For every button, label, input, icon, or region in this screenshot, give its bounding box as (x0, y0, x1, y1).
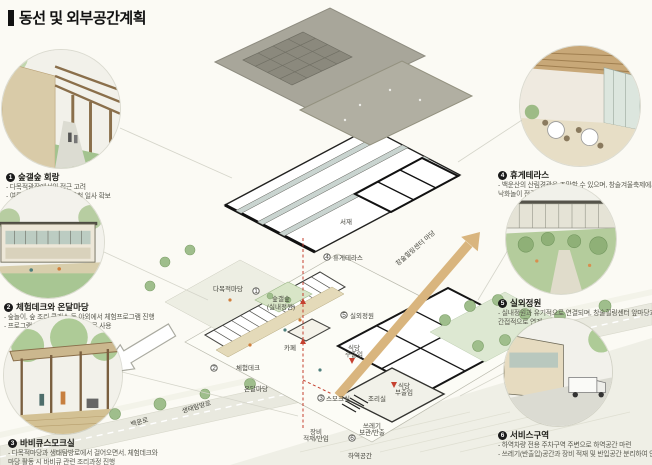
callout-outdoor-garden: 5실외정원 - 실내정원과 유기적으로 연결되며, 창술힐링센터 앞마당과 간접… (506, 184, 652, 327)
callout-heading: 1숲갤숲 회랑 (6, 171, 161, 183)
number-badge: 1 (6, 173, 15, 182)
callout-heading: 3바비큐스모크실 (8, 437, 188, 449)
callout-line: - 쓰레기(반출입)공간과 장비 적재 및 반입공간 분리하여 인접배치 (498, 450, 652, 459)
label-rest-main-2: 주출입 (345, 350, 363, 359)
label-trash-2: 보관/반출 (359, 428, 385, 437)
number-badge: 6 (498, 431, 507, 440)
photo-outdoor-garden (506, 184, 616, 294)
caption-service-zone: 6서비스구역 - 하역차량 전용 주차구역 주변으로 하역공간 마련 - 쓰레기… (498, 429, 652, 459)
photo-experience-deck (0, 186, 104, 298)
label-rest-sub-2: 부출입 (395, 388, 413, 397)
callout-heading: 5실외정원 (498, 297, 652, 309)
number-badge: 5 (498, 299, 507, 308)
callout-heading-text: 실외정원 (510, 297, 541, 309)
callout-heading: 6서비스구역 (498, 429, 652, 441)
roof-slabs (215, 8, 472, 145)
lifted-roof-level (225, 128, 460, 252)
callout-heading-text: 휴게테라스 (510, 169, 549, 181)
page-title: 동선 및 외부공간계획 (8, 7, 146, 28)
callout-line: - 하역차량 전용 주차구역 주변으로 하역공간 마련 (498, 441, 652, 450)
terrace-rendering (520, 46, 640, 166)
svg-text:1: 1 (254, 288, 258, 295)
presentation-board: 동선 및 외부공간계획 (0, 0, 652, 465)
svg-text:3: 3 (319, 395, 323, 402)
label-loading: 하역공간 (348, 451, 372, 460)
svg-text:2: 2 (212, 365, 216, 372)
callout-service-zone: 6서비스구역 - 하역차량 전용 주차구역 주변으로 하역공간 마련 - 쓰레기… (504, 318, 652, 459)
number-badge: 3 (8, 439, 17, 448)
callout-bbq-smoke-room: 3바비큐스모크실 - 다목적마당과 생태탐방로에서 걸어오면서, 체험데크와 마… (4, 316, 188, 465)
callout-heading: 2체험데크와 온달마당 (4, 301, 162, 313)
title-bar-icon (8, 10, 14, 26)
label-study: 서재 (340, 217, 352, 226)
callout-rest-terrace: 4휴게테라스 - 백운산의 산림경관을 조망할 수 있으며, 창술겨울축제에서 … (520, 46, 652, 199)
label-outdoor-garden: 실외정원 (350, 311, 374, 320)
callout-line: - 다목적마당과 생태탐방로에서 걸어오면서, 체험데크와 (8, 449, 188, 458)
svg-text:6: 6 (350, 435, 354, 442)
bbq-deck-rendering (4, 316, 122, 434)
callout-heading-text: 숲갤숲 회랑 (18, 171, 59, 183)
callout-line: 마당 활동 시 바비큐 관련 조리과정 진행 (8, 458, 188, 465)
label-indoor-garden: 숲갤숲 (272, 295, 290, 303)
label-indoor-garden-sub: (실내정원) (267, 302, 295, 311)
forest-corridor-rendering (2, 50, 120, 168)
label-smoke-room: 스모크실 (326, 394, 350, 403)
page-title-text: 동선 및 외부공간계획 (19, 7, 146, 28)
caption-bbq-smoke-room: 3바비큐스모크실 - 다목적마당과 생태탐방로에서 걸어오면서, 체험데크와 마… (8, 437, 188, 465)
axis-arrow-label: 창술힐링센터 마당 (393, 228, 436, 267)
photo-forest-corridor (2, 50, 120, 168)
label-ondal-yard: 온달마당 (244, 384, 268, 393)
callout-heading-text: 바비큐스모크실 (20, 437, 75, 449)
callout-forest-corridor: 1숲갤숲 회랑 - 다목적광장에서의 접근 고려 - 여름철 차양 역할 및 겨… (2, 50, 161, 201)
service-zone-rendering (504, 318, 612, 426)
callout-heading: 4휴게테라스 (498, 169, 652, 181)
label-terrace: 휴게테라스 (333, 253, 363, 262)
label-experience-deck: 체험데크 (236, 364, 260, 372)
callout-line: - 실내정원과 유기적으로 연결되며, 창술힐링센터 앞마당과 (498, 309, 652, 318)
photo-service-zone (504, 318, 612, 426)
label-kitchen: 조리실 (368, 394, 386, 403)
label-multipurpose-yard: 다목적마당 (213, 284, 243, 293)
callout-heading-text: 서비스구역 (510, 429, 549, 441)
label-equip-2: 적재/반입 (303, 434, 329, 443)
number-badge: 4 (498, 171, 507, 180)
svg-text:5: 5 (342, 312, 346, 319)
label-cafe: 카페 (284, 343, 296, 352)
experience-deck-rendering (0, 186, 104, 298)
photo-rest-terrace (520, 46, 640, 166)
svg-text:4: 4 (325, 254, 329, 261)
number-badge: 2 (4, 303, 13, 312)
photo-bbq-smoke-room (4, 316, 122, 434)
callout-heading-text: 체험데크와 온달마당 (16, 301, 89, 313)
garden-rendering (506, 184, 616, 294)
callout-experience-deck: 2체험데크와 온달마당 - 숲놀이, 숲 조리 클래스 등 야외에서 체험프로그… (0, 186, 162, 331)
